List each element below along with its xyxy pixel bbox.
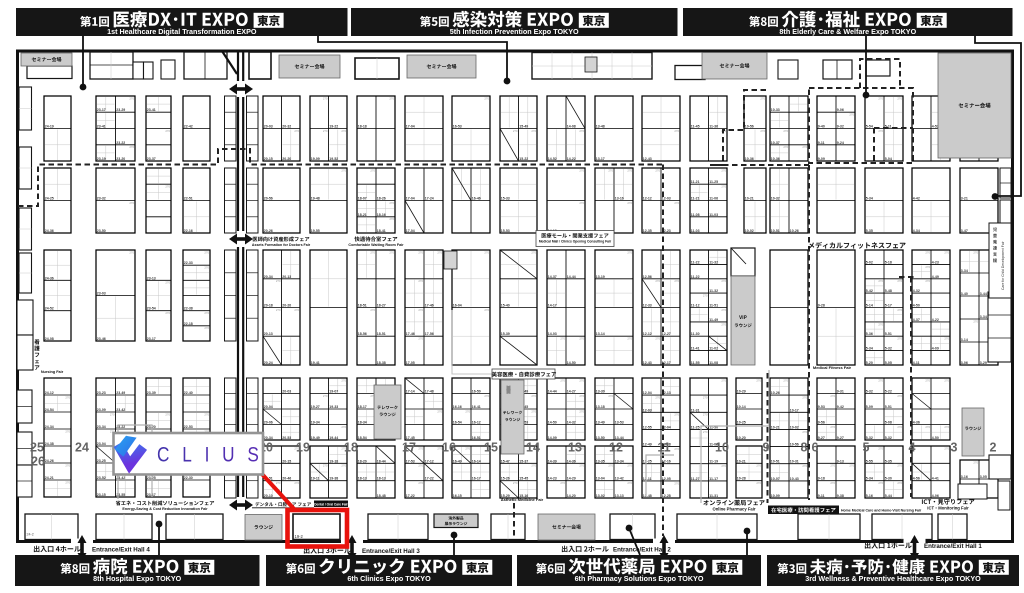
svg-text:270: 270 <box>437 250 442 254</box>
svg-text:11-22: 11-22 <box>691 260 700 264</box>
svg-text:11-31: 11-31 <box>709 494 718 498</box>
svg-text:18: 18 <box>344 441 358 455</box>
svg-text:4-42: 4-42 <box>913 197 920 201</box>
svg-text:12-12: 12-12 <box>643 332 652 336</box>
svg-text:270: 270 <box>721 464 726 468</box>
svg-text:270: 270 <box>579 464 584 468</box>
svg-text:1st Healthcare Digital Transfo: 1st Healthcare Digital Transformation EX… <box>107 27 257 36</box>
svg-text:270: 270 <box>276 279 281 283</box>
svg-text:Dental / Oral Care Fair: Dental / Oral Care Fair <box>314 502 348 506</box>
svg-text:13-02: 13-02 <box>596 494 605 498</box>
svg-text:270: 270 <box>721 308 726 312</box>
svg-text:17-04: 17-04 <box>406 197 415 201</box>
svg-text:11-55: 11-55 <box>691 361 700 365</box>
svg-text:270: 270 <box>849 464 854 468</box>
svg-text:23-41: 23-41 <box>147 108 156 112</box>
svg-text:14-08: 14-08 <box>567 125 576 129</box>
svg-text:16-17: 16-17 <box>472 477 481 481</box>
svg-text:16-46: 16-46 <box>472 197 481 201</box>
svg-text:4-56: 4-56 <box>913 477 920 481</box>
svg-text:13-30: 13-30 <box>596 390 605 394</box>
svg-text:4-34: 4-34 <box>913 229 920 233</box>
svg-text:5-30: 5-30 <box>885 477 892 481</box>
svg-text:3-34: 3-34 <box>961 269 968 273</box>
svg-text:18-13: 18-13 <box>377 477 386 481</box>
svg-text:18-07: 18-07 <box>358 197 367 201</box>
svg-text:9-32: 9-32 <box>837 125 844 129</box>
svg-text:270: 270 <box>760 129 765 133</box>
svg-text:20-03: 20-03 <box>282 390 291 394</box>
svg-text:19-34: 19-34 <box>311 421 320 425</box>
svg-text:10-33: 10-33 <box>771 108 780 112</box>
svg-text:11-03: 11-03 <box>709 213 718 217</box>
svg-text:270: 270 <box>944 425 949 429</box>
svg-text:270: 270 <box>204 412 209 416</box>
svg-text:19-55: 19-55 <box>311 229 320 233</box>
svg-text:Entrance/Exit Hall 4: Entrance/Exit Hall 4 <box>92 547 150 554</box>
svg-text:3-16: 3-16 <box>961 475 968 479</box>
svg-text:20-24: 20-24 <box>264 361 273 365</box>
svg-text:5-44: 5-44 <box>885 494 892 498</box>
svg-text:23-17: 23-17 <box>147 493 156 497</box>
svg-text:270: 270 <box>878 446 883 450</box>
svg-text:270: 270 <box>418 279 423 283</box>
svg-text:270: 270 <box>370 168 375 172</box>
svg-text:24-36: 24-36 <box>45 229 54 233</box>
svg-text:270: 270 <box>973 319 978 323</box>
svg-text:22-18: 22-18 <box>184 322 193 326</box>
svg-text:270: 270 <box>783 378 788 382</box>
svg-text:14-50: 14-50 <box>567 361 576 365</box>
svg-text:19-11: 19-11 <box>311 477 320 481</box>
svg-text:10-37: 10-37 <box>771 141 780 145</box>
svg-text:10-36: 10-36 <box>771 157 780 161</box>
svg-text:270: 270 <box>418 308 423 312</box>
svg-text:270: 270 <box>878 279 883 283</box>
svg-text:10-25: 10-25 <box>737 421 746 425</box>
svg-text:19-33: 19-33 <box>329 405 338 409</box>
svg-text:5-02: 5-02 <box>866 260 873 264</box>
svg-text:5-42: 5-42 <box>866 289 873 293</box>
svg-text:10-31: 10-31 <box>790 460 799 464</box>
svg-text:3-40: 3-40 <box>961 292 968 296</box>
svg-text:5-34: 5-34 <box>866 477 873 481</box>
svg-text:270: 270 <box>579 378 584 382</box>
svg-text:18-26: 18-26 <box>377 197 386 201</box>
svg-text:270: 270 <box>418 464 423 468</box>
svg-text:20-10: 20-10 <box>264 494 273 498</box>
svg-text:270: 270 <box>897 279 902 283</box>
svg-text:23-19: 23-19 <box>97 157 106 161</box>
svg-text:20-34: 20-34 <box>264 275 273 279</box>
svg-text:270: 270 <box>531 409 536 413</box>
svg-text:14-32: 14-32 <box>567 421 576 425</box>
svg-text:12-12: 12-12 <box>643 197 652 201</box>
svg-text:270: 270 <box>165 129 170 133</box>
svg-text:270: 270 <box>925 378 930 382</box>
svg-text:24-52: 24-52 <box>45 307 54 311</box>
svg-text:270: 270 <box>437 409 442 413</box>
svg-text:14-37: 14-37 <box>548 275 557 279</box>
svg-text:10-51: 10-51 <box>771 229 780 233</box>
svg-text:20-18: 20-18 <box>264 304 273 308</box>
svg-text:23-49: 23-49 <box>116 391 125 395</box>
svg-text:18-41: 18-41 <box>377 229 386 233</box>
svg-text:5-34: 5-34 <box>866 347 873 351</box>
svg-text:270: 270 <box>129 96 134 100</box>
svg-text:24-2: 24-2 <box>27 533 34 537</box>
svg-text:5th Infection Prevention Expo: 5th Infection Prevention Expo TOKYO <box>450 27 579 36</box>
svg-text:23-32: 23-32 <box>97 197 106 201</box>
svg-text:5-55: 5-55 <box>866 459 873 463</box>
svg-text:Medical Fitness Fair: Medical Fitness Fair <box>813 365 852 370</box>
svg-text:270: 270 <box>484 250 489 254</box>
svg-text:15-37: 15-37 <box>519 459 528 463</box>
svg-text:270: 270 <box>878 322 883 326</box>
svg-text:12-28: 12-28 <box>662 494 671 498</box>
svg-text:13-14: 13-14 <box>596 332 605 336</box>
svg-text:16-53: 16-53 <box>453 125 462 129</box>
svg-text:270: 270 <box>484 308 489 312</box>
svg-text:9: 9 <box>763 441 770 455</box>
svg-text:14-50: 14-50 <box>548 421 557 425</box>
svg-text:5-18: 5-18 <box>885 260 892 264</box>
svg-text:Home Medical Care and Home-Vis: Home Medical Care and Home-Visit Nursing… <box>841 509 922 513</box>
svg-text:5-14: 5-14 <box>866 304 873 308</box>
svg-text:23-41: 23-41 <box>97 125 106 129</box>
svg-text:10-17: 10-17 <box>790 408 799 412</box>
svg-text:23-25: 23-25 <box>147 476 156 480</box>
svg-text:9-11: 9-11 <box>818 494 825 498</box>
svg-text:23-13: 23-13 <box>147 276 156 280</box>
svg-text:5-51: 5-51 <box>885 405 892 409</box>
svg-text:270: 270 <box>341 129 346 133</box>
svg-text:270: 270 <box>721 322 726 326</box>
svg-text:9-09: 9-09 <box>818 157 825 161</box>
svg-text:18-34: 18-34 <box>358 421 367 425</box>
svg-text:270: 270 <box>370 308 375 312</box>
svg-text:270: 270 <box>418 250 423 254</box>
svg-text:17-46: 17-46 <box>425 304 434 308</box>
svg-text:270: 270 <box>783 145 788 149</box>
svg-text:11-27: 11-27 <box>691 477 700 481</box>
svg-text:270: 270 <box>721 185 726 189</box>
svg-text:15-22: 15-22 <box>519 157 528 161</box>
svg-text:13-48: 13-48 <box>596 125 605 129</box>
svg-text:Asthetic Medicine Fair: Asthetic Medicine Fair <box>501 497 544 502</box>
svg-text:270: 270 <box>341 168 346 172</box>
svg-text:20-53: 20-53 <box>282 436 291 440</box>
svg-text:270: 270 <box>389 217 394 221</box>
svg-text:270: 270 <box>323 394 328 398</box>
svg-text:9-53: 9-53 <box>818 405 825 409</box>
svg-text:18-51: 18-51 <box>377 332 386 336</box>
svg-text:17-22: 17-22 <box>425 477 434 481</box>
svg-text:270: 270 <box>579 201 584 205</box>
svg-text:16-51: 16-51 <box>472 436 481 440</box>
svg-text:20-15: 20-15 <box>282 459 291 463</box>
svg-text:12-49: 12-49 <box>643 443 652 447</box>
svg-text:Energy-Saving & Cost Reduction: Energy-Saving & Cost Reduction Innovatio… <box>122 507 208 511</box>
svg-text:270: 270 <box>849 113 854 117</box>
svg-text:6th Pharmacy Solutions Expo TO: 6th Pharmacy Solutions Expo TOKYO <box>575 574 704 583</box>
svg-text:5-32: 5-32 <box>885 436 892 440</box>
svg-text:270: 270 <box>560 378 565 382</box>
svg-text:19-07: 19-07 <box>329 390 338 394</box>
svg-text:20-13: 20-13 <box>282 275 291 279</box>
svg-text:270: 270 <box>389 250 394 254</box>
svg-text:4-49: 4-49 <box>932 275 939 279</box>
svg-text:11-25: 11-25 <box>709 180 718 184</box>
svg-text:14-03: 14-03 <box>548 332 557 336</box>
svg-text:19-44: 19-44 <box>329 436 338 440</box>
svg-text:20-15: 20-15 <box>264 157 273 161</box>
svg-text:270: 270 <box>674 129 679 133</box>
svg-text:12-43: 12-43 <box>643 361 652 365</box>
svg-text:270: 270 <box>802 464 807 468</box>
svg-text:270: 270 <box>944 250 949 254</box>
svg-text:17-53: 17-53 <box>406 459 415 463</box>
svg-text:270: 270 <box>608 394 613 398</box>
svg-text:20-56: 20-56 <box>264 197 273 201</box>
svg-text:5-20: 5-20 <box>866 361 873 365</box>
svg-text:19-52: 19-52 <box>329 157 338 161</box>
svg-text:18-44: 18-44 <box>377 459 386 463</box>
svg-text:8th Hospital Expo TOKYO: 8th Hospital Expo TOKYO <box>93 574 182 583</box>
svg-text:9-18: 9-18 <box>818 477 825 481</box>
svg-text:270: 270 <box>465 409 470 413</box>
svg-text:19-09: 19-09 <box>311 157 320 161</box>
svg-text:270: 270 <box>802 145 807 149</box>
svg-text:15-53: 15-53 <box>501 229 510 233</box>
svg-text:15-47: 15-47 <box>501 459 510 463</box>
svg-text:270: 270 <box>627 481 632 485</box>
svg-text:270: 270 <box>703 396 708 400</box>
svg-text:18-54: 18-54 <box>358 436 367 440</box>
svg-text:270: 270 <box>897 96 902 100</box>
svg-text:270: 270 <box>323 129 328 133</box>
svg-text:270: 270 <box>627 464 632 468</box>
svg-text:19: 19 <box>296 441 310 455</box>
svg-text:17-45: 17-45 <box>406 436 415 440</box>
svg-text:5-32: 5-32 <box>885 347 892 351</box>
svg-text:13-13: 13-13 <box>615 494 624 498</box>
svg-text:270: 270 <box>341 464 346 468</box>
svg-text:23-52: 23-52 <box>97 476 106 480</box>
svg-text:22-51: 22-51 <box>184 197 193 201</box>
svg-text:12-25: 12-25 <box>643 460 652 464</box>
svg-text:270: 270 <box>655 279 660 283</box>
svg-text:270: 270 <box>579 129 584 133</box>
svg-text:23-25: 23-25 <box>97 459 106 463</box>
svg-text:19-48: 19-48 <box>311 197 320 201</box>
svg-text:13-34: 13-34 <box>615 459 624 463</box>
svg-text:11-31: 11-31 <box>691 408 700 412</box>
svg-text:270: 270 <box>627 201 632 205</box>
svg-text:270: 270 <box>897 481 902 485</box>
svg-text:17-48: 17-48 <box>425 390 434 394</box>
svg-text:24: 24 <box>75 441 89 455</box>
svg-text:11-21: 11-21 <box>691 197 700 201</box>
svg-text:5-35: 5-35 <box>866 229 873 233</box>
svg-text:20-03: 20-03 <box>264 125 273 129</box>
svg-text:8: 8 <box>801 441 808 455</box>
svg-text:15-33: 15-33 <box>501 197 510 201</box>
svg-text:9-28: 9-28 <box>818 304 825 308</box>
svg-text:270: 270 <box>756 464 761 468</box>
svg-text:270: 270 <box>204 250 209 254</box>
svg-text:270: 270 <box>878 129 883 133</box>
svg-text:12-04: 12-04 <box>643 391 652 395</box>
svg-text:270: 270 <box>756 481 761 485</box>
svg-text:8th Elderly Care & Welfare Exp: 8th Elderly Care & Welfare Expo TOKYO <box>779 27 916 36</box>
svg-text:18-18: 18-18 <box>358 125 367 129</box>
svg-text:12-03: 12-03 <box>643 408 652 412</box>
svg-text:23-17: 23-17 <box>147 337 156 341</box>
svg-text:270: 270 <box>878 378 883 382</box>
svg-text:3-14: 3-14 <box>961 338 968 342</box>
svg-text:3-06: 3-06 <box>961 361 968 365</box>
svg-text:270: 270 <box>65 395 70 399</box>
svg-text:24-54: 24-54 <box>45 408 54 412</box>
svg-text:10-21: 10-21 <box>745 197 754 201</box>
svg-text:24-34: 24-34 <box>45 425 54 429</box>
svg-text:20-46: 20-46 <box>282 477 291 481</box>
svg-text:11-41: 11-41 <box>691 347 700 351</box>
svg-text:Entrance/Exit Hall 3: Entrance/Exit Hall 3 <box>362 548 420 555</box>
svg-text:270: 270 <box>897 464 902 468</box>
svg-text:11-17: 11-17 <box>709 477 718 481</box>
svg-text:4-32: 4-32 <box>913 289 920 293</box>
svg-text:3-21: 3-21 <box>961 197 968 201</box>
svg-text:270: 270 <box>655 337 660 341</box>
svg-text:14-23: 14-23 <box>548 477 557 481</box>
svg-text:19-18: 19-18 <box>329 459 338 463</box>
svg-text:11-49: 11-49 <box>709 318 718 322</box>
svg-text:18-56: 18-56 <box>358 332 367 336</box>
svg-text:3-34: 3-34 <box>980 315 987 319</box>
svg-text:3rd Wellness & Preventive Heal: 3rd Wellness & Preventive Healthcare Exp… <box>805 574 981 583</box>
svg-text:5-32: 5-32 <box>866 390 873 394</box>
svg-text:16-12: 16-12 <box>472 421 481 425</box>
svg-text:18-17: 18-17 <box>358 405 367 409</box>
svg-text:270: 270 <box>579 337 584 341</box>
svg-text:Nursing Fair: Nursing Fair <box>41 370 64 374</box>
svg-text:270: 270 <box>484 96 489 100</box>
svg-text:10-36: 10-36 <box>745 157 754 161</box>
svg-text:13-42: 13-42 <box>615 477 624 481</box>
svg-text:270: 270 <box>721 279 726 283</box>
svg-text:10-43: 10-43 <box>790 477 799 481</box>
svg-text:17-12: 17-12 <box>425 459 434 463</box>
svg-text:4-36: 4-36 <box>913 421 920 425</box>
svg-text:10-56: 10-56 <box>745 125 754 129</box>
svg-text:5-36: 5-36 <box>866 332 873 336</box>
svg-text:16-15: 16-15 <box>453 494 462 498</box>
svg-text:13-18: 13-18 <box>596 405 605 409</box>
svg-text:15-39: 15-39 <box>501 332 510 336</box>
svg-text:270: 270 <box>944 337 949 341</box>
svg-text:270: 270 <box>323 96 328 100</box>
svg-text:3-29: 3-29 <box>980 361 987 365</box>
svg-text:270: 270 <box>878 481 883 485</box>
svg-text:14-09: 14-09 <box>548 436 557 440</box>
svg-text:17-04: 17-04 <box>406 229 415 233</box>
svg-text:5-51: 5-51 <box>885 332 892 336</box>
svg-text:16-41: 16-41 <box>472 405 481 409</box>
svg-text:9-06: 9-06 <box>837 108 844 112</box>
svg-text:270: 270 <box>323 464 328 468</box>
svg-text:6: 6 <box>812 441 819 455</box>
svg-text:9-31: 9-31 <box>837 390 844 394</box>
svg-text:20-06: 20-06 <box>264 421 273 425</box>
svg-text:270: 270 <box>802 396 807 400</box>
svg-text:270: 270 <box>165 281 170 285</box>
svg-text:11-32: 11-32 <box>709 289 718 293</box>
svg-text:13-49: 13-49 <box>596 421 605 425</box>
svg-text:25: 25 <box>30 441 44 455</box>
svg-text:3-44: 3-44 <box>980 292 987 296</box>
svg-text:4-37: 4-37 <box>913 318 920 322</box>
svg-text:270: 270 <box>389 201 394 205</box>
svg-text:4-50: 4-50 <box>932 436 939 440</box>
svg-text:270: 270 <box>703 413 708 417</box>
svg-text:26: 26 <box>31 455 45 469</box>
svg-text:23-46: 23-46 <box>97 337 106 341</box>
svg-text:270: 270 <box>830 394 835 398</box>
svg-text:10-26: 10-26 <box>790 229 799 233</box>
svg-text:270: 270 <box>418 337 423 341</box>
svg-text:11-36: 11-36 <box>709 125 718 129</box>
svg-text:15-26: 15-26 <box>501 477 510 481</box>
svg-text:270: 270 <box>204 326 209 330</box>
svg-text:270: 270 <box>294 308 299 312</box>
svg-text:20-04: 20-04 <box>264 405 273 409</box>
svg-text:20-26: 20-26 <box>264 229 273 233</box>
svg-text:17: 17 <box>402 441 416 455</box>
svg-text:270: 270 <box>513 129 518 133</box>
svg-text:270: 270 <box>627 168 632 172</box>
svg-text:14-20: 14-20 <box>567 494 576 498</box>
svg-text:270: 270 <box>897 308 902 312</box>
svg-text:23-37: 23-37 <box>147 157 156 161</box>
svg-text:5-08: 5-08 <box>885 421 892 425</box>
svg-text:12-33: 12-33 <box>643 304 652 308</box>
svg-text:270: 270 <box>608 464 613 468</box>
svg-text:24-21: 24-21 <box>45 476 54 480</box>
svg-text:270: 270 <box>897 425 902 429</box>
svg-text:10-02: 10-02 <box>745 229 754 233</box>
svg-text:10-32: 10-32 <box>771 197 780 201</box>
svg-text:19-41: 19-41 <box>311 361 320 365</box>
svg-text:270: 270 <box>465 446 470 450</box>
svg-text:23-34: 23-34 <box>97 425 106 429</box>
svg-text:11-32: 11-32 <box>709 260 718 264</box>
svg-text:14-39: 14-39 <box>548 459 557 463</box>
svg-text:4-23: 4-23 <box>932 260 939 264</box>
svg-text:10-21: 10-21 <box>771 425 780 429</box>
svg-text:270: 270 <box>830 464 835 468</box>
svg-text:270: 270 <box>276 308 281 312</box>
svg-text:18-27: 18-27 <box>377 304 386 308</box>
svg-text:9-11: 9-11 <box>818 141 825 145</box>
svg-text:270: 270 <box>627 250 632 254</box>
svg-text:270: 270 <box>418 446 423 450</box>
svg-text:17-04: 17-04 <box>406 125 415 129</box>
svg-text:16-54: 16-54 <box>453 421 462 425</box>
svg-text:270: 270 <box>418 481 423 485</box>
svg-text:14-17: 14-17 <box>548 304 557 308</box>
